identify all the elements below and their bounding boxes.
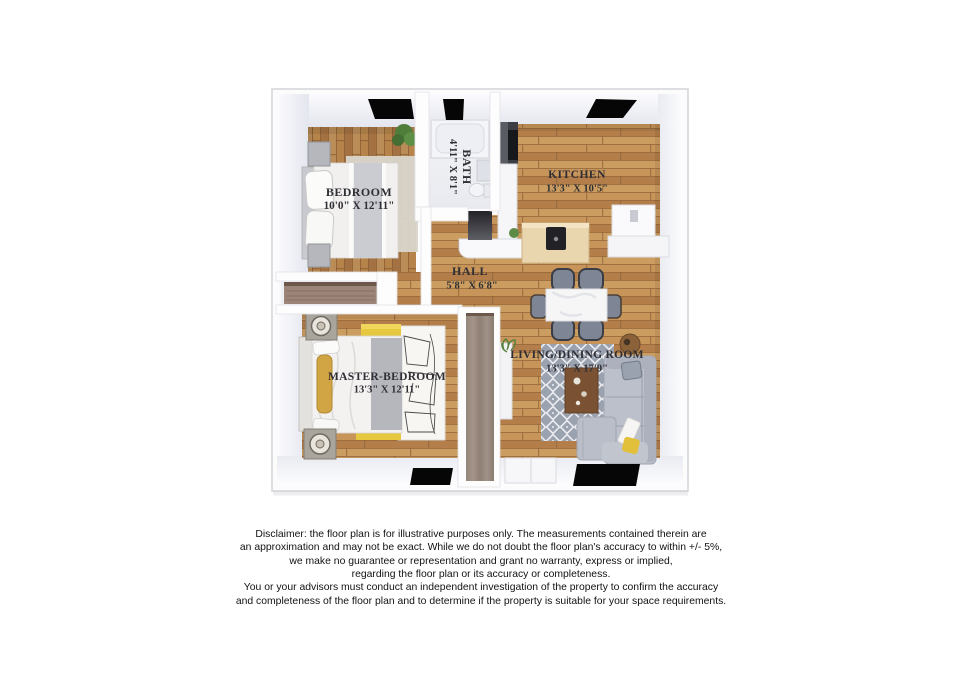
svg-text:13'3" X 10'5": 13'3" X 10'5" bbox=[546, 184, 608, 195]
svg-text:4'11" X 8'1": 4'11" X 8'1" bbox=[447, 139, 458, 195]
svg-text:10'0" X 12'11": 10'0" X 12'11" bbox=[324, 200, 395, 212]
svg-text:HALL: HALL bbox=[452, 264, 488, 278]
svg-text:BEDROOM: BEDROOM bbox=[326, 185, 392, 199]
svg-text:LIVING/DINING ROOM: LIVING/DINING ROOM bbox=[510, 349, 644, 361]
svg-text:KITCHEN: KITCHEN bbox=[548, 169, 606, 181]
svg-text:5'8" X 6'8": 5'8" X 6'8" bbox=[446, 281, 497, 292]
svg-text:BATH: BATH bbox=[460, 149, 474, 185]
svg-text:MASTER-BEDROOM: MASTER-BEDROOM bbox=[328, 371, 446, 383]
svg-text:13'3" X 12'11": 13'3" X 12'11" bbox=[354, 385, 421, 396]
svg-text:13'3" X 17'9": 13'3" X 17'9" bbox=[546, 364, 608, 375]
